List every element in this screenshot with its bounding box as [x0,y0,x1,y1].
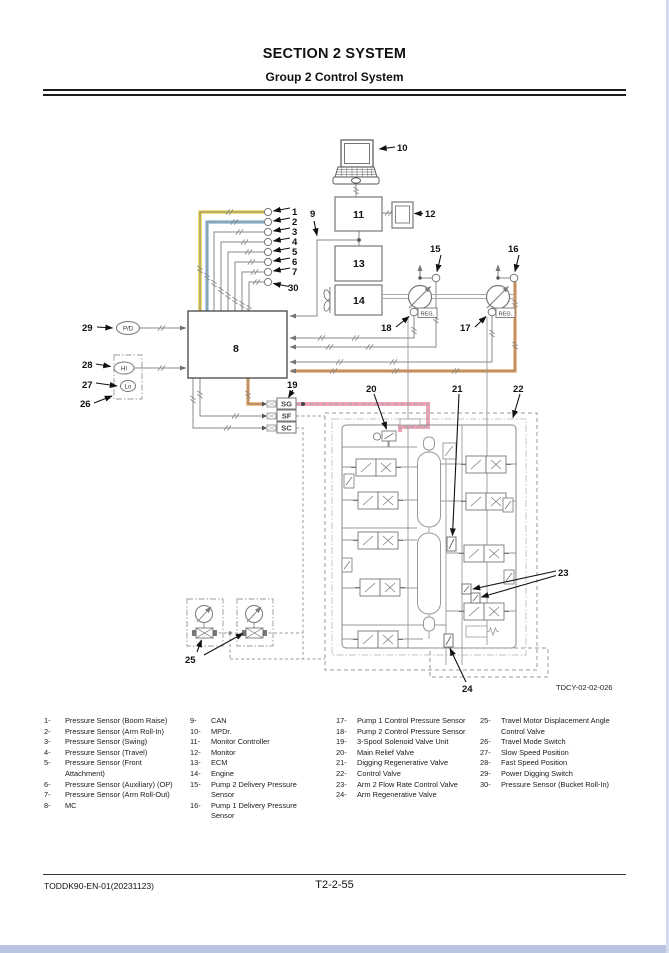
pd-label: P/D [123,327,134,333]
legend-item-text: Pressure Sensor (Arm Roll-In) [65,727,174,738]
legend-item: 6-Pressure Sensor (Auxiliary) (OP) [44,780,174,791]
legend-item-number: 14- [190,769,211,780]
legend-item-number: 4- [44,748,65,759]
reg1-label: REG. [499,312,513,318]
legend-item: 25-Travel Motor Displacement Angle Contr… [480,716,610,737]
legend-item-number: 22- [336,769,357,780]
pressure-sensor-circles [264,208,271,285]
legend-item: 27-Slow Speed Position [480,748,610,759]
lo-label: Lo [125,385,132,391]
callout-19: 19 [287,380,298,391]
ecm-label: 13 [353,258,365,270]
legend-item-text: Engine [211,769,320,780]
legend-item-text: Arm 2 Flow Rate Control Valve [357,780,466,791]
legend-item-text: Pressure Sensor (Auxiliary) (OP) [65,780,174,791]
center-bypass-capsules [418,437,441,631]
legend-item: 29-Power Digging Switch [480,769,610,780]
figure-code: TDCY-02-02-026 [556,683,612,692]
callout-20: 20 [366,384,377,395]
legend-item: 14-Engine [190,769,320,780]
hi-label: HI [121,367,127,373]
pink-junction-dot [301,402,305,406]
callout-24: 24 [462,684,473,695]
callout-7: 7 [292,267,297,278]
travel-junction-dot [228,631,231,634]
legend-item-number: 28- [480,758,501,769]
legend-item-number: 23- [336,780,357,791]
legend-item-number: 10- [190,727,211,738]
engine-label: 14 [353,295,365,307]
legend-item-number: 29- [480,769,501,780]
legend-item-text: Pressure Sensor (Boom Raise) [65,716,174,727]
legend-item-text: 3-Spool Solenoid Valve Unit [357,737,466,748]
callout-15: 15 [430,244,441,255]
fan-icon [323,287,331,313]
callout-22: 22 [513,384,524,395]
page-number: T2-2-55 [43,879,626,891]
legend-item-number: 12- [190,748,211,759]
legend-item-text: Fast Speed Position [501,758,610,769]
arm-regenerative-valve [444,634,453,647]
legend-item-number: 25- [480,716,501,727]
callout-12: 12 [425,209,436,220]
callout-27: 27 [82,380,93,391]
legend-item-number: 7- [44,790,65,801]
legend-column-1: 1-Pressure Sensor (Boom Raise)2-Pressure… [44,716,174,811]
legend-item-text: Monitor Controller [211,737,320,748]
legend-item-number: 30- [480,780,501,791]
legend-item-text: Pump 1 Control Pressure Sensor [357,716,466,727]
legend-item-number: 6- [44,780,65,791]
legend-item: 15-Pump 2 Delivery Pressure Sensor [190,780,320,801]
pump2-delivery-sensor-icon [432,274,440,282]
control-valve-bottom-extension [430,648,548,677]
legend-item: 9-CAN [190,716,320,727]
pilot-dashed-lines [213,416,325,659]
legend-item-text: Pressure Sensor (Swing) [65,737,174,748]
legend-item-text: Main Relief Valve [357,748,466,759]
callout-23: 23 [558,568,569,579]
legend-item: 12-Monitor [190,748,320,759]
callout-10: 10 [397,143,408,154]
legend-item-text: Monitor [211,748,320,759]
legend-item-text: Pump 2 Control Pressure Sensor [357,727,466,738]
bottom-right-valve [466,626,499,637]
legend-item: 1-Pressure Sensor (Boom Raise) [44,716,174,727]
legend-item-text: Digging Regenerative Valve [357,758,466,769]
legend-item-number: 3- [44,737,65,748]
plug-arrows [262,402,267,431]
legend-item-text: Pump 1 Delivery Pressure Sensor [211,801,320,822]
legend-item-number: 11- [190,737,211,748]
legend-item: 18-Pump 2 Control Pressure Sensor [336,727,466,738]
can-junction-dot [357,238,361,242]
callout-30: 30 [288,283,299,294]
legend-item: 21-Digging Regenerative Valve [336,758,466,769]
legend-item-number: 5- [44,758,65,769]
callout-18: 18 [381,323,392,334]
callout-26: 26 [80,399,91,410]
legend-item-number: 15- [190,780,211,791]
reg2-label: REG. [421,312,435,318]
legend-item-number: 26- [480,737,501,748]
legend-item: 3-Pressure Sensor (Swing) [44,737,174,748]
legend-column-2: 9-CAN10-MPDr.11-Monitor Controller12-Mon… [190,716,320,822]
legend-item: 17-Pump 1 Control Pressure Sensor [336,716,466,727]
legend-item: 5-Pressure Sensor (Front Attachment) [44,758,174,779]
legend-item-text: Power Digging Switch [501,769,610,780]
sc-label: SC [281,424,292,433]
legend-item-text: MC [65,801,174,812]
pump2-control-sensor-icon [410,308,418,316]
pump-group [382,265,518,318]
callout-21: 21 [452,384,463,395]
legend-item-text: Pressure Sensor (Bucket Roll-In) [501,780,610,791]
controller-boxes [335,197,413,315]
legend-item: 13-ECM [190,758,320,769]
legend-item: 4-Pressure Sensor (Travel) [44,748,174,759]
legend-item: 23-Arm 2 Flow Rate Control Valve [336,780,466,791]
legend-item-number: 20- [336,748,357,759]
page-bottom-band [0,945,669,953]
legend-item: 20-Main Relief Valve [336,748,466,759]
legend-item-text: Travel Motor Displacement Angle Control … [501,716,610,737]
legend-item-number: 27- [480,748,501,759]
callout-28: 28 [82,360,93,371]
legend-item-number: 19- [336,737,357,748]
laptop-icon [333,140,379,184]
legend-item-text: MPDr. [211,727,320,738]
legend-item: 19-3-Spool Solenoid Valve Unit [336,737,466,748]
callout-17: 17 [460,323,471,334]
legend-item-text: Control Valve [357,769,466,780]
legend-item: 2-Pressure Sensor (Arm Roll-In) [44,727,174,738]
pump1-control-sensor-icon [488,308,496,316]
legend-item-text: Arm Regenerative Valve [357,790,466,801]
legend-item-text: Travel Mode Switch [501,737,610,748]
pump1-delivery-sensor-icon [510,274,518,282]
legend-column-3: 17-Pump 1 Control Pressure Sensor18-Pump… [336,716,466,801]
legend-item-number: 1- [44,716,65,727]
legend-item-number: 8- [44,801,65,812]
footer-rule [43,874,626,875]
legend-item-number: 17- [336,716,357,727]
legend-item-number: 2- [44,727,65,738]
legend-item-text: Pressure Sensor (Travel) [65,748,174,759]
legend-item: 8-MC [44,801,174,812]
travel-mode-switch-box [114,355,142,399]
main-relief-valve [373,431,396,447]
monitor-controller-label: 11 [353,209,364,221]
legend-item: 30-Pressure Sensor (Bucket Roll-In) [480,780,610,791]
legend-item-text: Slow Speed Position [501,748,610,759]
sf-label: SF [282,412,292,421]
legend-item-number: 13- [190,758,211,769]
legend-item-number: 21- [336,758,357,769]
legend-item-number: 9- [190,716,211,727]
legend-item-text: Pressure Sensor (Front Attachment) [65,758,174,779]
legend-item: 11-Monitor Controller [190,737,320,748]
legend-item-number: 16- [190,801,211,812]
legend-item-number: 24- [336,790,357,801]
legend-item-text: CAN [211,716,320,727]
legend-item-text: Pressure Sensor (Arm Roll-Out) [65,790,174,801]
orange-highlight-wire-out [248,378,262,404]
callout-25: 25 [185,655,196,666]
callout-16: 16 [508,244,519,255]
mc-box-label: 8 [233,343,239,355]
sg-label: SG [281,400,292,409]
legend-item-text: Pump 2 Delivery Pressure Sensor [211,780,320,801]
legend-item: 10-MPDr. [190,727,320,738]
digging-regenerative-valve [447,537,456,551]
legend-item: 26-Travel Mode Switch [480,737,610,748]
legend-column-4: 25-Travel Motor Displacement Angle Contr… [480,716,610,790]
legend-item-number: 18- [336,727,357,738]
legend-item-text: ECM [211,758,320,769]
arm2-flow-rate-valves [462,584,480,603]
callout-29: 29 [82,323,93,334]
legend-item: 24-Arm Regenerative Valve [336,790,466,801]
legend-item: 22-Control Valve [336,769,466,780]
callout-9: 9 [310,209,315,220]
legend-item: 16-Pump 1 Delivery Pressure Sensor [190,801,320,822]
legend-item: 7-Pressure Sensor (Arm Roll-Out) [44,790,174,801]
legend-item: 28-Fast Speed Position [480,758,610,769]
